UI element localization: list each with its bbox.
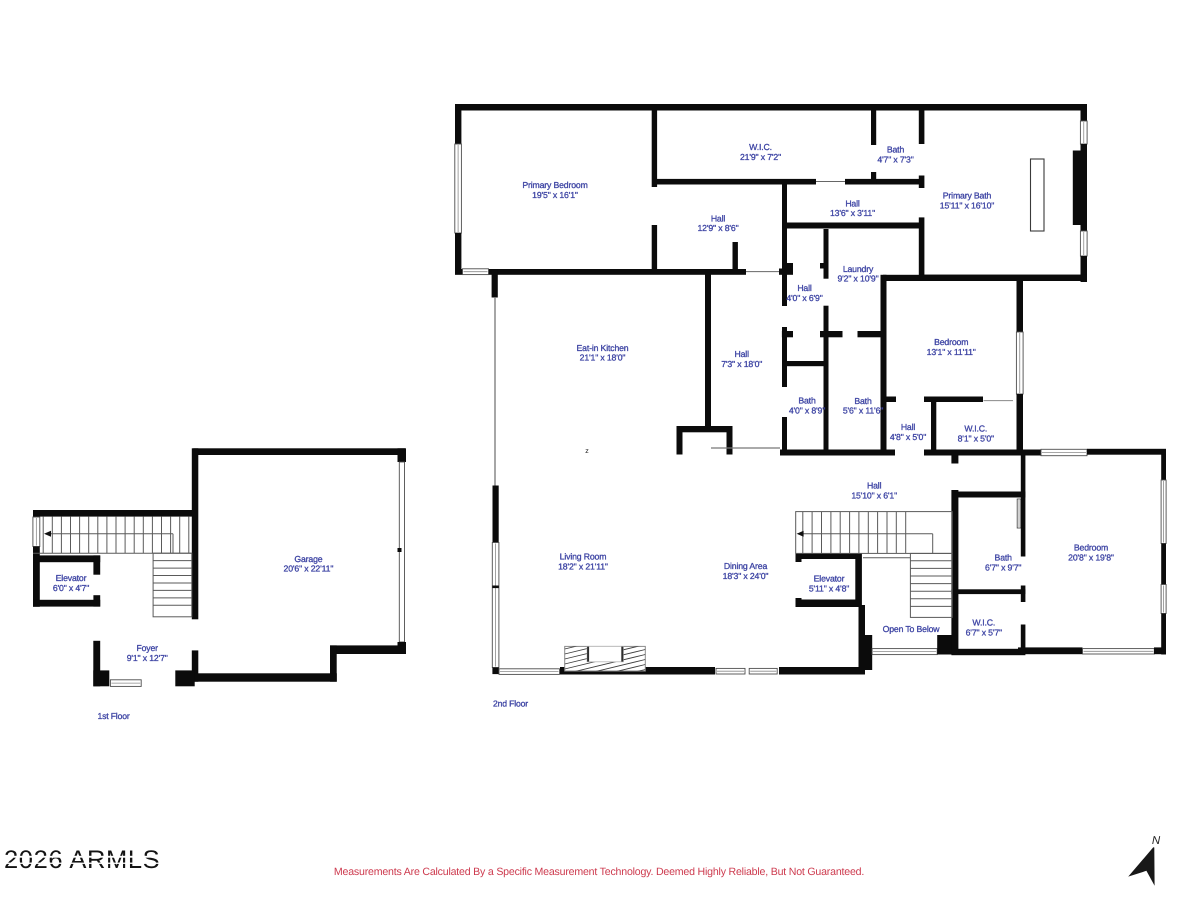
svg-text:Bedroom: Bedroom xyxy=(1074,543,1108,553)
svg-text:7'3" x 18'0": 7'3" x 18'0" xyxy=(721,359,762,369)
svg-text:4'8" x 5'0": 4'8" x 5'0" xyxy=(890,432,926,442)
svg-text:Bath: Bath xyxy=(995,553,1013,563)
svg-text:Hall: Hall xyxy=(845,198,860,208)
svg-text:Foyer: Foyer xyxy=(136,643,158,653)
svg-text:5'11" x 4'8": 5'11" x 4'8" xyxy=(809,583,849,593)
svg-text:Eat-in Kitchen: Eat-in Kitchen xyxy=(577,343,629,353)
svg-text:9'2" x 10'9": 9'2" x 10'9" xyxy=(837,274,878,284)
svg-text:W.I.C.: W.I.C. xyxy=(749,142,772,152)
svg-text:Elevator: Elevator xyxy=(814,574,845,584)
svg-text:Elevator: Elevator xyxy=(56,573,87,583)
svg-text:Laundry: Laundry xyxy=(843,264,874,274)
svg-text:6'0" x 4'7": 6'0" x 4'7" xyxy=(53,583,89,593)
svg-text:15'11" x 16'10": 15'11" x 16'10" xyxy=(940,200,994,210)
svg-text:18'2" x 21'11": 18'2" x 21'11" xyxy=(558,562,608,572)
svg-text:W.I.C.: W.I.C. xyxy=(964,424,987,434)
svg-text:N: N xyxy=(1152,835,1161,847)
svg-text:z: z xyxy=(585,448,589,455)
svg-text:Primary Bath: Primary Bath xyxy=(943,191,992,201)
svg-text:8'1" x 5'0": 8'1" x 5'0" xyxy=(958,433,994,443)
svg-text:Bedroom: Bedroom xyxy=(934,337,968,347)
svg-text:Living Room: Living Room xyxy=(560,552,607,562)
svg-text:6'7" x 9'7": 6'7" x 9'7" xyxy=(985,562,1021,572)
svg-text:1st Floor: 1st Floor xyxy=(97,711,129,721)
svg-text:Primary Bedroom: Primary Bedroom xyxy=(522,180,587,190)
svg-text:Dining Area: Dining Area xyxy=(724,561,768,571)
svg-text:W.I.C.: W.I.C. xyxy=(972,618,995,628)
svg-text:Hall: Hall xyxy=(735,349,750,359)
svg-text:5'6" x 11'6": 5'6" x 11'6" xyxy=(843,406,883,416)
svg-text:4'7" x 7'3": 4'7" x 7'3" xyxy=(877,154,913,164)
svg-text:Bath: Bath xyxy=(887,145,905,155)
svg-text:13'1" x 11'11": 13'1" x 11'11" xyxy=(927,347,976,357)
svg-text:Measurements Are Calculated By: Measurements Are Calculated By a Specifi… xyxy=(334,866,864,878)
svg-text:2026 ARMLS: 2026 ARMLS xyxy=(4,846,160,874)
svg-text:20'6" x 22'11": 20'6" x 22'11" xyxy=(284,564,334,574)
svg-text:21'9" x 7'2": 21'9" x 7'2" xyxy=(740,152,781,162)
svg-text:13'6" x 3'11": 13'6" x 3'11" xyxy=(830,208,875,218)
svg-text:20'8" x 19'8": 20'8" x 19'8" xyxy=(1068,552,1114,562)
svg-text:Bath: Bath xyxy=(854,396,872,406)
svg-text:Garage: Garage xyxy=(294,554,322,564)
svg-text:4'0" x 6'9": 4'0" x 6'9" xyxy=(786,293,822,303)
svg-text:Hall: Hall xyxy=(797,283,812,293)
svg-text:18'3" x 24'0": 18'3" x 24'0" xyxy=(723,571,769,581)
svg-text:Hall: Hall xyxy=(711,213,726,223)
svg-text:4'0" x 8'9": 4'0" x 8'9" xyxy=(789,405,825,415)
svg-text:Hall: Hall xyxy=(901,422,916,432)
svg-text:Hall: Hall xyxy=(867,481,882,491)
svg-text:12'9" x 8'6": 12'9" x 8'6" xyxy=(697,223,738,233)
svg-text:2nd Floor: 2nd Floor xyxy=(493,699,528,709)
svg-text:15'10" x 6'1": 15'10" x 6'1" xyxy=(851,490,897,500)
svg-text:Open To Below: Open To Below xyxy=(883,624,941,634)
svg-text:6'7" x 5'7": 6'7" x 5'7" xyxy=(966,627,1002,637)
svg-text:21'1" x 18'0": 21'1" x 18'0" xyxy=(580,353,626,363)
svg-text:9'1" x 12'7": 9'1" x 12'7" xyxy=(127,653,168,663)
svg-text:Bath: Bath xyxy=(798,396,816,406)
svg-text:19'5" x 16'1": 19'5" x 16'1" xyxy=(532,190,578,200)
